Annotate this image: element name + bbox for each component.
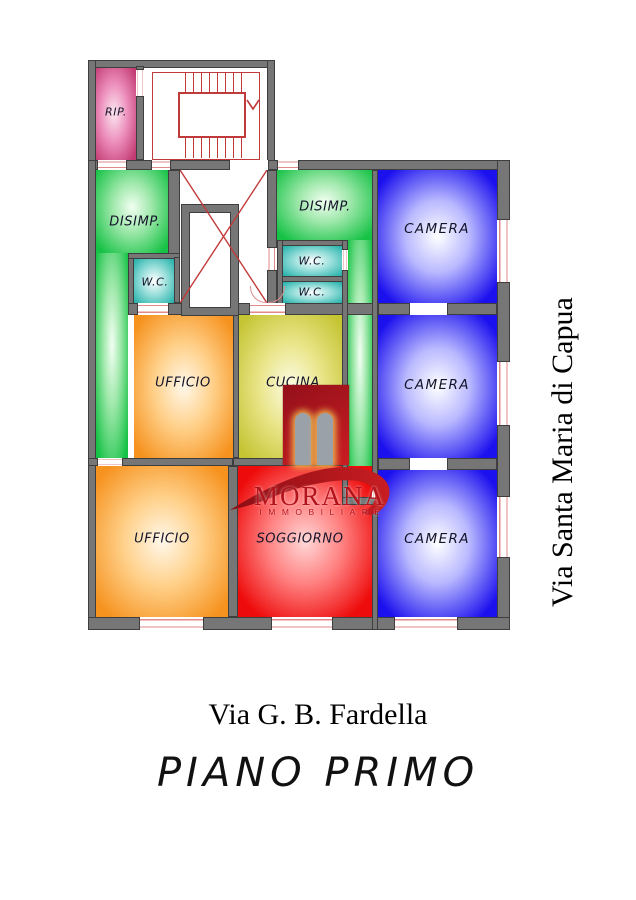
door-opening (250, 303, 285, 315)
wall-segment (88, 617, 140, 630)
room-label-wc-right-upper: W.C. (298, 255, 325, 268)
street-name-bottom: Via G. B. Fardella (98, 698, 538, 732)
wall-segment (168, 170, 180, 257)
room-disimp-left (96, 170, 168, 253)
wall-segment (497, 425, 510, 497)
door-opening (98, 458, 122, 466)
floor-plan-page: RIP. DISIMP. DISIMP. W.C. W.C. W.C. UFFI… (0, 0, 636, 900)
wall-segment (332, 617, 395, 630)
room-label-soggiorno: SOGGIORNO (256, 532, 343, 547)
wall-segment (233, 315, 239, 458)
wall-segment (128, 253, 180, 259)
door-opening (267, 248, 277, 270)
wall-segment (298, 160, 510, 170)
wall-segment (268, 160, 278, 170)
room-label-wc-left: W.C. (141, 276, 168, 289)
room-label-ufficio-bottom: UFFICIO (134, 532, 190, 547)
room-label-disimp-left: DISIMP. (109, 215, 161, 230)
door-opening (410, 458, 447, 470)
wall-segment (447, 303, 497, 315)
door-opening (136, 70, 144, 96)
wall-segment (128, 253, 134, 309)
wall-segment (277, 276, 348, 282)
wall-segment (342, 240, 348, 250)
stair-direction-arrow (246, 99, 260, 111)
window (140, 617, 203, 630)
door-opening (278, 160, 298, 170)
door-opening (342, 250, 348, 270)
room-label-wc-right-lower: W.C. (298, 286, 325, 299)
wall-segment (126, 160, 152, 170)
wall-segment (497, 282, 510, 362)
window (497, 362, 510, 425)
wall-segment (267, 60, 275, 168)
window (497, 220, 510, 282)
room-label-disimp-right: DISIMP. (299, 200, 351, 215)
light-shaft-cross (180, 170, 267, 303)
room-label-camera-top: CAMERA (404, 221, 470, 237)
wall-segment (88, 160, 96, 630)
stair-landing (178, 92, 246, 138)
wall-segment (497, 160, 510, 220)
room-label-rip: RIP. (105, 106, 127, 119)
stair-treads-upper (178, 72, 242, 92)
wall-segment (128, 303, 138, 315)
door-opening (98, 160, 126, 170)
room-label-camera-bottom: CAMERA (404, 531, 470, 547)
wall-segment (88, 60, 275, 68)
door-opening (410, 303, 447, 315)
window (395, 617, 457, 630)
wall-segment (457, 617, 510, 630)
wall-segment (136, 96, 144, 160)
wall-segment (378, 303, 410, 315)
wall-segment (122, 458, 233, 466)
agency-subtitle: IMMOBILIARE (238, 507, 408, 517)
wall-segment (88, 458, 98, 466)
street-name-right: Via Santa Maria di Capua (546, 292, 594, 612)
wall-segment (88, 60, 96, 168)
wall-segment (203, 617, 272, 630)
wall-segment (277, 240, 348, 246)
room-label-ufficio-middle: UFFICIO (155, 376, 211, 391)
wall-segment (447, 458, 497, 470)
floor-title: PIANO PRIMO (78, 750, 558, 796)
room-label-camera-middle: CAMERA (404, 377, 470, 393)
wall-segment (267, 170, 277, 248)
wall-segment (285, 303, 378, 315)
door-opening (138, 303, 168, 315)
window (272, 617, 332, 630)
wall-segment (170, 160, 230, 170)
window (497, 497, 510, 557)
corridor-strip-left (96, 253, 128, 458)
stair-opening (230, 160, 268, 170)
wall-segment (372, 170, 378, 478)
door-opening (152, 160, 170, 170)
